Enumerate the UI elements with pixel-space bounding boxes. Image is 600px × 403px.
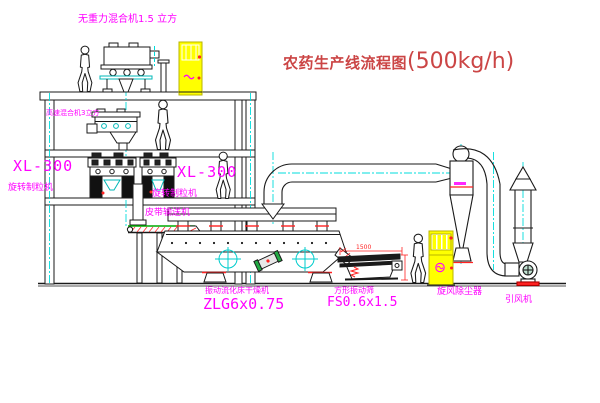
label-screen-name: 方形振动筛 [334, 287, 374, 295]
gravity-free-mixer [100, 43, 169, 92]
label-granulator2-model: XL-300 [177, 165, 237, 180]
exhaust-duct [264, 164, 452, 205]
flow-diagram-canvas: 农药生产线流程图(500kg/h) 无重力混合机1.5 立方 高速混合机3立方 … [0, 0, 600, 403]
title-chinese: 农药生产线流程图 [283, 54, 407, 72]
cyclone-separator [450, 146, 507, 276]
vibrating-screen [338, 247, 408, 280]
person-figure [156, 100, 171, 149]
dimension-label-1500: 1500 [356, 244, 371, 251]
label-granulator1-model: XL-300 [13, 159, 73, 174]
label-belt-conveyor: 皮带输送机 [145, 209, 190, 218]
title-capacity: (500kg/h) [407, 49, 514, 74]
label-top-mixer: 无重力混合机1.5 立方 [78, 15, 177, 25]
induced-draft-fan [505, 261, 539, 286]
indicator-dot-icon [198, 55, 201, 58]
label-dryer-name: 振动流化床干燥机 [205, 287, 269, 295]
granulator-1 [88, 153, 136, 198]
person-figure [411, 234, 426, 282]
label-dryer-model: ZLG6x0.75 [203, 297, 284, 312]
label-cyclone: 旋风除尘器 [437, 288, 482, 297]
control-cabinet-bottom [427, 231, 455, 285]
ground-line [38, 284, 566, 287]
label-granulator1-name: 旋转制粒机 [8, 184, 53, 193]
diagram-title: 农药生产线流程图(500kg/h) [283, 49, 514, 74]
label-induced-fan: 引风机 [505, 296, 532, 305]
control-cabinet-top [179, 42, 202, 95]
label-second-mixer: 高速混合机3立方 [46, 110, 99, 117]
indicator-dot-icon [449, 236, 452, 239]
label-screen-model: FS0.6x1.5 [327, 296, 397, 309]
micro-label-mark [454, 182, 466, 185]
label-granulator2-name: 旋转制粒机 [152, 190, 197, 199]
person-figure [78, 46, 92, 91]
